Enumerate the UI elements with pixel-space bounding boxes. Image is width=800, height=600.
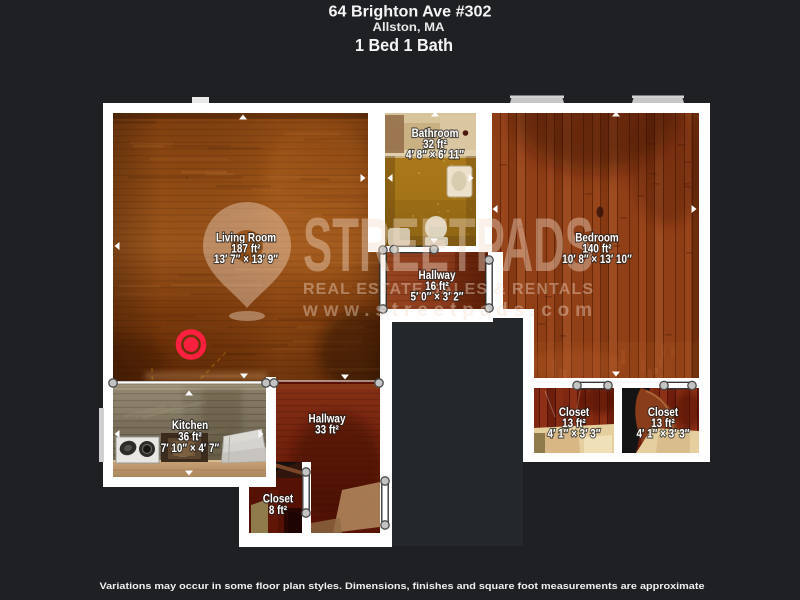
svg-text:Allston, MA: Allston, MA xyxy=(373,20,445,34)
svg-text:10′ 8″ × 13′ 10″: 10′ 8″ × 13′ 10″ xyxy=(562,253,632,266)
svg-text:1 Bed 1 Bath: 1 Bed 1 Bath xyxy=(355,35,453,55)
svg-text:64 Brighton Ave #302: 64 Brighton Ave #302 xyxy=(329,4,492,21)
svg-text:7′ 10″ × 4′ 7″: 7′ 10″ × 4′ 7″ xyxy=(161,442,220,455)
svg-text:Variations may occur in some f: Variations may occur in some floor plan … xyxy=(100,581,705,592)
svg-text:4′ 1″ × 3′ 3″: 4′ 1″ × 3′ 3″ xyxy=(636,428,690,441)
svg-text:5′ 0″ × 3′ 2″: 5′ 0″ × 3′ 2″ xyxy=(410,291,464,304)
svg-text:13′ 7″ × 13′ 9″: 13′ 7″ × 13′ 9″ xyxy=(214,253,279,266)
svg-text:8 ft²: 8 ft² xyxy=(269,504,287,517)
svg-text:4′ 8″ × 6′ 11″: 4′ 8″ × 6′ 11″ xyxy=(406,149,465,162)
svg-text:33 ft²: 33 ft² xyxy=(315,423,339,436)
svg-text:4′ 1″ × 3′ 3″: 4′ 1″ × 3′ 3″ xyxy=(547,428,601,441)
